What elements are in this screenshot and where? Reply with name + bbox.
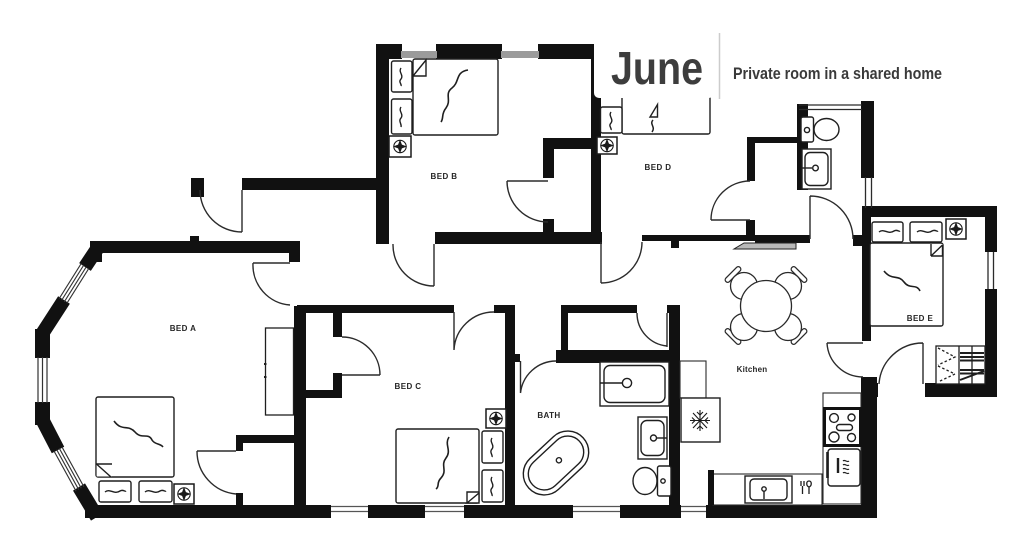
svg-text:BED D: BED D xyxy=(645,163,672,172)
svg-text:Private room in a shared home: Private room in a shared home xyxy=(733,64,942,83)
svg-text:June: June xyxy=(611,42,703,94)
svg-text:BED C: BED C xyxy=(395,382,422,391)
svg-text:BED A: BED A xyxy=(170,324,197,333)
svg-text:BED E: BED E xyxy=(907,314,934,323)
svg-text:BATH: BATH xyxy=(537,411,560,420)
svg-text:Kitchen: Kitchen xyxy=(737,365,768,374)
svg-text:BED B: BED B xyxy=(431,172,458,181)
